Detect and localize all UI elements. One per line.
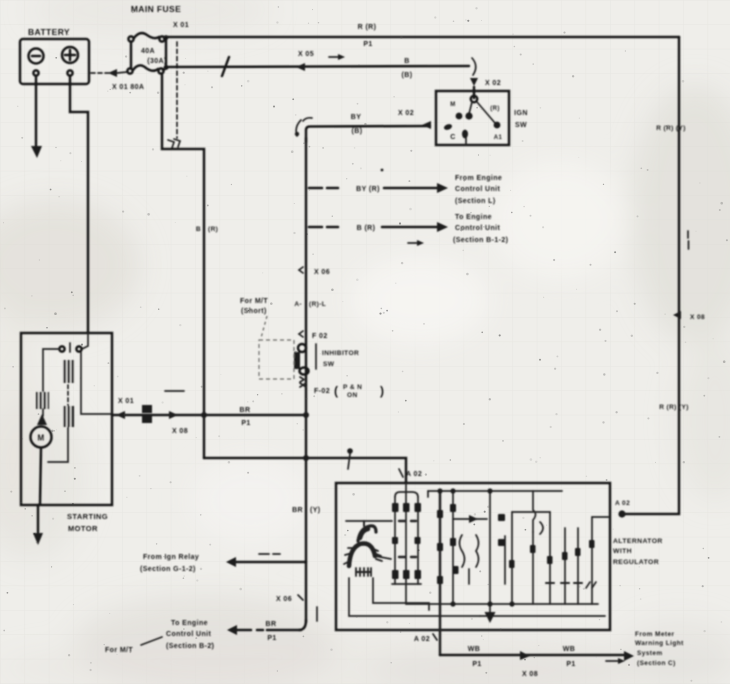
svg-text:(Section B-2): (Section B-2) [166, 643, 214, 650]
svg-text:BR: BR [240, 407, 251, 414]
svg-text:P1: P1 [472, 661, 481, 668]
svg-text:To Engine: To Engine [171, 620, 208, 627]
svg-text:A1: A1 [494, 135, 503, 141]
svg-text:Control Unit: Control Unit [455, 186, 501, 193]
svg-text:X 06: X 06 [276, 596, 292, 603]
svg-text:B (R): B (R) [357, 225, 376, 232]
svg-text:40A: 40A [141, 48, 155, 55]
svg-text:WITH: WITH [613, 548, 632, 555]
svg-text:X 01: X 01 [173, 22, 189, 29]
svg-text:BY: BY [351, 114, 362, 121]
svg-text:X 05: X 05 [298, 51, 314, 58]
svg-text:A 02: A 02 [414, 636, 430, 643]
svg-text:P1: P1 [566, 661, 575, 668]
svg-text:(R): (R) [208, 226, 218, 233]
svg-text:WB: WB [468, 646, 480, 653]
svg-text:From Meter: From Meter [635, 631, 674, 638]
svg-text:BR: BR [292, 507, 303, 514]
svg-text:BY (R): BY (R) [356, 186, 380, 193]
svg-text:(B): (B) [352, 128, 363, 135]
svg-text:C: C [450, 134, 455, 141]
svg-text:For M/T: For M/T [240, 298, 268, 305]
svg-text:F 02: F 02 [312, 333, 328, 340]
svg-text:Control Unit: Control Unit [166, 631, 212, 638]
svg-text:X 08: X 08 [690, 314, 705, 321]
svg-text:(Y): (Y) [310, 507, 321, 514]
svg-text:A-: A- [294, 301, 302, 308]
svg-text:X 02: X 02 [398, 110, 414, 117]
svg-text:SW: SW [515, 122, 527, 129]
svg-text:): ) [380, 384, 384, 398]
svg-text:ALTERNATOR: ALTERNATOR [613, 538, 663, 545]
svg-text:(: ( [334, 384, 338, 398]
svg-text:(Section G-1-2): (Section G-1-2) [140, 566, 196, 573]
svg-text:Warning Light: Warning Light [635, 640, 684, 647]
svg-text:IGN: IGN [514, 110, 528, 117]
svg-text:BATTERY: BATTERY [28, 27, 70, 37]
svg-text:P1: P1 [241, 420, 250, 427]
svg-text:INHIBITOR: INHIBITOR [322, 350, 359, 357]
svg-text:B: B [404, 58, 409, 65]
svg-text:WB: WB [563, 646, 575, 653]
svg-text:M: M [450, 102, 455, 108]
svg-text:STARTING: STARTING [67, 512, 108, 521]
svg-text:For M/T: For M/T [105, 647, 133, 654]
svg-text:P & N: P & N [343, 384, 362, 391]
svg-text:MAIN FUSE: MAIN FUSE [131, 4, 181, 14]
svg-text:R (R): R (R) [358, 24, 377, 31]
svg-text:X 08: X 08 [522, 671, 538, 678]
svg-text:F-02: F-02 [314, 388, 330, 395]
svg-text:M: M [37, 434, 44, 443]
svg-text:SW: SW [323, 361, 335, 368]
svg-text:From Engine: From Engine [455, 175, 502, 182]
svg-text:(Section C): (Section C) [637, 660, 676, 667]
svg-text:R (R) (Y): R (R) (Y) [656, 125, 686, 132]
svg-text:A 02: A 02 [615, 500, 630, 507]
svg-text:(Section L): (Section L) [455, 198, 496, 205]
svg-text:X 01: X 01 [118, 398, 134, 405]
svg-text:System: System [637, 650, 663, 657]
svg-text:(30A): (30A) [147, 58, 167, 65]
svg-text:X 08: X 08 [172, 428, 188, 435]
svg-text:From Ign Relay: From Ign Relay [143, 554, 199, 561]
svg-text:X 06: X 06 [314, 269, 330, 276]
svg-text:To Engine: To Engine [455, 214, 492, 221]
svg-text:X 02: X 02 [485, 80, 501, 87]
svg-text:(Short): (Short) [241, 308, 267, 315]
svg-text:REGULATOR: REGULATOR [613, 559, 659, 566]
svg-text:B: B [196, 226, 201, 233]
svg-text:R (R) (Y): R (R) (Y) [659, 404, 689, 411]
svg-text:X 01 80A: X 01 80A [112, 84, 144, 91]
svg-text:(R)-L: (R)-L [309, 301, 326, 308]
svg-text:(R): (R) [490, 106, 500, 112]
svg-text:(Section B-1-2): (Section B-1-2) [453, 237, 508, 244]
svg-text:P1: P1 [363, 41, 372, 48]
svg-text:MOTOR: MOTOR [68, 524, 98, 533]
svg-text:A 02: A 02 [406, 471, 422, 478]
svg-text:(B): (B) [402, 72, 413, 79]
svg-text:P1: P1 [267, 635, 276, 642]
svg-text:ON: ON [347, 392, 358, 399]
svg-text:BR: BR [266, 621, 277, 628]
